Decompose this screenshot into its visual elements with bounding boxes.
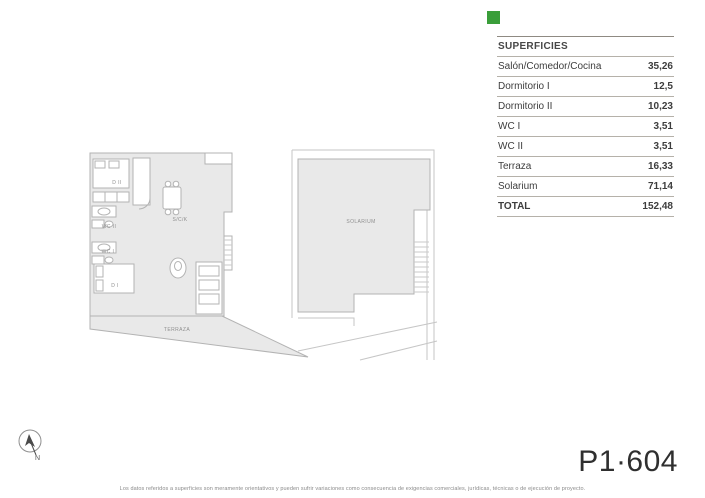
room-label-wc2: WC II — [102, 224, 117, 230]
row-value: 3,51 — [654, 141, 673, 152]
table-header: SUPERFICIES — [498, 41, 568, 52]
room-label-terraza: TERRAZA — [164, 327, 190, 333]
unit-code: P1·604 — [578, 445, 678, 479]
row-value: 10,23 — [648, 101, 673, 112]
table-row: Dormitorio I 12,5 — [497, 77, 674, 97]
room-label-wc1: WC I — [102, 249, 115, 255]
row-value: 35,26 — [648, 61, 673, 72]
row-value: 16,33 — [648, 161, 673, 172]
room-label-salon-comedor-cocina: S/C/K — [172, 217, 187, 223]
table-row: Solarium 71,14 — [497, 177, 674, 197]
row-label: Terraza — [498, 161, 531, 172]
room-label-dormitorio1: D I — [111, 283, 119, 289]
room-label-solarium: SOLARIUM — [346, 219, 375, 225]
total-value: 152,48 — [642, 201, 673, 212]
row-label: Solarium — [498, 181, 537, 192]
row-value: 3,51 — [654, 121, 673, 132]
surfaces-table: SUPERFICIES Salón/Comedor/Cocina 35,26 D… — [497, 36, 674, 217]
compass-letter: N — [35, 455, 40, 462]
room-label-dormitorio2: D II — [112, 180, 121, 186]
row-value: 12,5 — [654, 81, 673, 92]
table-total-row: TOTAL 152,48 — [497, 197, 674, 217]
row-label: Salón/Comedor/Cocina — [498, 61, 601, 72]
row-label: Dormitorio I — [498, 81, 550, 92]
green-brand-square — [487, 11, 500, 24]
plan-sheet: D II WC II WC I D I S/C/K TERRAZA SOLARI… — [0, 0, 705, 498]
row-label: WC II — [498, 141, 523, 152]
table-row: Salón/Comedor/Cocina 35,26 — [497, 57, 674, 77]
row-value: 71,14 — [648, 181, 673, 192]
footer-disclaimer: Los datos referidos a superficies son me… — [0, 486, 705, 492]
table-row: Dormitorio II 10,23 — [497, 97, 674, 117]
table-row: WC I 3,51 — [497, 117, 674, 137]
north-compass-icon: N — [15, 427, 47, 465]
table-row: Terraza 16,33 — [497, 157, 674, 177]
row-label: Dormitorio II — [498, 101, 552, 112]
total-label: TOTAL — [498, 201, 530, 212]
row-label: WC I — [498, 121, 520, 132]
table-header-row: SUPERFICIES — [497, 37, 674, 57]
table-row: WC II 3,51 — [497, 137, 674, 157]
